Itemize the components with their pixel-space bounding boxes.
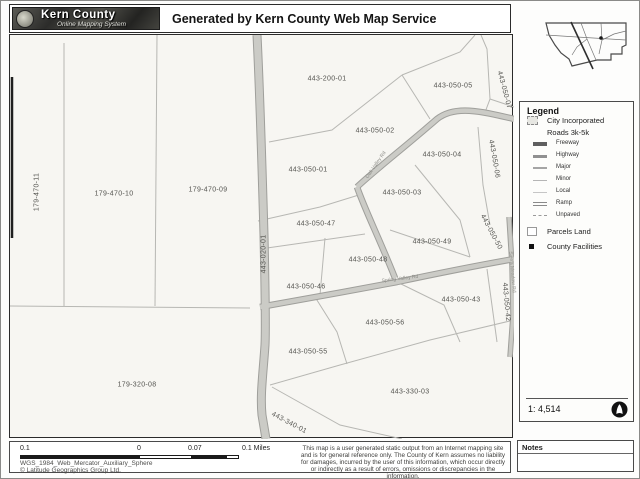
legend-item-unpaved: Unpaved <box>520 211 633 223</box>
map-print-page: Kern County Online Mapping System Genera… <box>0 0 640 479</box>
footer-panel: 0.1 0 0.07 0.1 Miles WGS_1984_Web_Mercat… <box>9 441 511 473</box>
county-seal-icon <box>16 10 34 28</box>
disclaimer-text: This map is a user generated static outp… <box>298 445 508 479</box>
county-locator-inset <box>541 9 631 73</box>
parcel-label: 443-340-01 <box>270 411 308 435</box>
legend-item-label: Unpaved <box>556 212 580 218</box>
notes-separator <box>518 453 633 454</box>
scalebar-segment <box>226 455 239 459</box>
line-icon <box>533 155 547 158</box>
parcel-label: 443-200-01 <box>308 76 347 83</box>
line-icon <box>533 192 547 193</box>
scalebar-segment <box>20 455 139 459</box>
logo-subtitle: Online Mapping System <box>57 21 126 28</box>
road-label: Spring Valley Rd <box>381 274 418 284</box>
scale-label-007: 0.07 <box>188 445 202 452</box>
parcel-label: 179-470-10 <box>95 191 134 198</box>
scale-ratio: 1: 4,514 <box>528 404 561 414</box>
legend-item-freeway: Freeway <box>520 139 633 151</box>
parcel-label: 443-330-03 <box>391 389 430 396</box>
parcel-label: 443-050-06 <box>487 139 501 178</box>
parcel-label: 443-050-03 <box>383 190 422 197</box>
parcel-label: 443-050-04 <box>423 152 462 159</box>
north-arrow-icon <box>611 401 628 418</box>
copyright-text: © Latitude Geographics Group Ltd. <box>20 467 121 474</box>
line-icon <box>533 142 547 146</box>
ramp-icon <box>533 202 547 206</box>
legend-item-local: Local <box>520 187 633 199</box>
line-icon <box>533 167 547 169</box>
scale-label-zero: 0 <box>137 445 141 452</box>
parcel-label: 443-020-01 <box>261 235 268 274</box>
parcel-map: 179-470-11179-470-10179-470-09179-320-08… <box>9 34 513 438</box>
city-icon <box>527 116 538 125</box>
scalebar-segment <box>139 455 192 459</box>
parcel-label: 443-050-01 <box>289 167 328 174</box>
legend-item-label: County Facilities <box>547 242 602 251</box>
parcel-label: 443-050-05 <box>434 83 473 90</box>
parcel-label: 443-050-46 <box>287 284 326 291</box>
inset-location-dot <box>599 36 603 40</box>
parcel-label: 443-050-02 <box>356 128 395 135</box>
legend-item-label: Ramp <box>556 200 572 206</box>
parcel-label: 443-050-55 <box>289 349 328 356</box>
notes-title: Notes <box>522 443 543 452</box>
legend-item-minor: Minor <box>520 175 633 187</box>
legend-item-label: Roads 3k-5k <box>547 128 589 137</box>
page-title: Generated by Kern County Web Map Service <box>172 12 436 26</box>
parcel-label: 179-320-08 <box>118 382 157 389</box>
legend-item-major: Major <box>520 163 633 175</box>
notes-panel: Notes <box>517 440 634 472</box>
parcel-label: 179-470-09 <box>189 187 228 194</box>
legend-item-city-incorporated: City Incorporated <box>520 115 633 127</box>
scale-label-left: 0.1 <box>20 445 30 452</box>
legend-item-label: City Incorporated <box>547 116 604 125</box>
scalebar-segment <box>192 455 226 459</box>
parcel-label: 443-050-50 <box>479 213 503 251</box>
kern-county-logo: Kern County Online Mapping System <box>12 7 160 30</box>
parcel-label: 179-470-11 <box>34 173 41 211</box>
facility-icon <box>529 244 534 249</box>
legend-item-county-facilities: County Facilities <box>520 241 633 253</box>
header-bar: Kern County Online Mapping System Genera… <box>9 4 511 33</box>
legend-item-label: Local <box>556 188 570 194</box>
legend-item-ramp: Ramp <box>520 199 633 211</box>
dashed-icon <box>533 215 547 216</box>
parcel-label: 443-050-49 <box>413 239 452 246</box>
legend-separator <box>526 398 628 399</box>
legend-item-label: Parcels Land <box>547 227 591 236</box>
line-icon <box>533 180 547 181</box>
parcel-label: 443-050-07 <box>496 70 513 109</box>
parcel-label: 443-050-43 <box>442 297 481 304</box>
logo-title: Kern County <box>41 9 116 21</box>
road-label: Sierra Meadow Rd <box>507 251 517 293</box>
parcel-icon <box>527 227 537 236</box>
legend-item-label: Major <box>556 164 571 170</box>
legend-panel: Legend City IncorporatedRoads 3k-5kFreew… <box>519 101 634 422</box>
projection-text: WGS_1984_Web_Mercator_Auxiliary_Sphere <box>20 460 152 467</box>
parcel-label: 443-050-48 <box>349 257 388 264</box>
map-labels-layer: 179-470-11179-470-10179-470-09179-320-08… <box>10 35 512 437</box>
parcel-label: 443-050-47 <box>297 221 336 228</box>
legend-item-label: Freeway <box>556 140 579 146</box>
scale-label-miles: 0.1 Miles <box>242 445 270 452</box>
legend-item-roads-3k-5k: Roads 3k-5k <box>520 127 633 139</box>
legend-item-parcels-land: Parcels Land <box>520 226 633 238</box>
road-label: Oak Valley Rd <box>364 150 387 179</box>
parcel-label: 443-050-56 <box>366 320 405 327</box>
legend-item-highway: Highway <box>520 151 633 163</box>
legend-item-label: Minor <box>556 176 571 182</box>
legend-item-label: Highway <box>556 152 579 158</box>
